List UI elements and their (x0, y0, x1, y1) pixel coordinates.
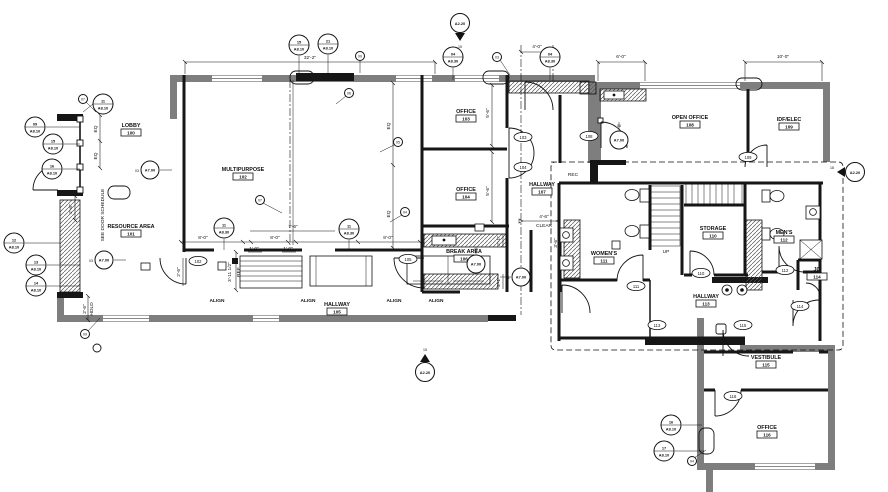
note-text: ALIGN (429, 298, 444, 304)
keynote-number: 06 (347, 92, 351, 96)
room-label-office-104: OFFICE 104 (456, 187, 476, 200)
callout-bubble: 11 A8.10 (93, 94, 113, 114)
callout-bubble: 04 A8.30 (443, 47, 463, 67)
dim-text: EQ (386, 210, 392, 217)
room-label-resource-area: RESOURCE AREA 101 (107, 224, 154, 237)
dim-text: 32'-2" (304, 55, 317, 61)
keynote-number: 04 (690, 460, 694, 464)
keynote-number: 05 (396, 141, 400, 145)
door-tag-number: 108 (586, 134, 594, 139)
dim-text: 2'-6" (176, 267, 182, 277)
keynote: 04 (688, 457, 697, 466)
note-text: CLEAR (536, 223, 553, 229)
room-name: HALLWAY (693, 294, 719, 300)
door-tag-number: 105 (405, 257, 413, 262)
elevation-sheet: A7.00 (614, 138, 624, 143)
callout-sheet: A8.30 (448, 59, 458, 64)
callout-bubble: 11 A8.30 (339, 219, 359, 239)
room-number: 107 (538, 189, 546, 194)
new-wall-infill (57, 73, 768, 345)
callout-sheet: A8.10 (659, 453, 669, 458)
callout-sheet: A8.10 (31, 288, 41, 293)
room-number: 101 (127, 231, 135, 236)
door-tag-number: 112 (782, 268, 789, 273)
room-name: VESTIBULE (751, 355, 782, 361)
note-text: ALIGN (387, 298, 402, 304)
elevation-number: 11 (506, 276, 510, 280)
elevation-marker: A7.00 11 (506, 268, 530, 286)
hallway-casework (141, 224, 620, 288)
room-number: 104 (462, 194, 470, 199)
door-tag-number: 113 (654, 323, 661, 328)
callout-bubble: 11 A8.30 (214, 218, 234, 238)
elevation-sheet: A7.00 (99, 258, 109, 263)
callout-bubble: 15 A8.10 (289, 35, 309, 55)
door-tag-number: 115 (740, 323, 747, 328)
door-tag-number: 111 (633, 284, 640, 289)
callout-sheet: A8.10 (47, 171, 57, 176)
room-name: HALLWAY (529, 182, 555, 188)
dim-text: 2'-1" (496, 236, 502, 246)
floor-plan-canvas: LOBBY 100 RESOURCE AREA 101 MULTIPURPOSE… (0, 0, 888, 492)
room-number: 111 (600, 258, 608, 263)
note-text: HOLD (89, 302, 95, 316)
elevation-sheet: A7.00 (471, 262, 481, 267)
room-label-open-office: OPEN OFFICE 108 (672, 115, 709, 128)
room-name: LOBBY (122, 123, 141, 129)
door-tag-number: 114 (797, 304, 804, 309)
door-tag-number: 110 (698, 271, 705, 276)
room-name: OFFICE (456, 109, 476, 115)
dim-text: EQ (386, 122, 392, 129)
keynote: 09 (81, 330, 90, 339)
elevation-marker: A7.00 03 (135, 161, 159, 179)
note-text: ALIGN (210, 298, 225, 304)
dim-text: 2'-6" (68, 204, 74, 214)
callout-sheet: A8.30 (545, 59, 555, 64)
keynote: 07 (256, 196, 265, 205)
elevation-marker: A7.00 06 (610, 124, 628, 149)
keynote: 06 (345, 89, 354, 98)
door-tag: 115 (734, 320, 752, 329)
room-name: OFFICE (757, 425, 777, 431)
elevation-number: 06 (617, 124, 621, 128)
door-tag: 116 (724, 391, 742, 400)
elevation-markers: A7.00 03 A7.00 03 A7.00 12 A7.00 11 A7.0… (89, 124, 628, 286)
callout-number: 17 (662, 446, 666, 451)
door-tag: 104 (514, 162, 532, 171)
callout-sheet: A8.10 (98, 106, 108, 111)
dim-text: 2'-1" (496, 277, 502, 287)
callout-bubble: 17 A8.10 (654, 441, 674, 461)
door-tag: 113 (648, 320, 666, 329)
room-label-idf-elec: IDF/ELEC 109 (777, 117, 802, 130)
door-tag: 102 (189, 256, 207, 265)
elevation-marker: A7.00 03 (89, 251, 113, 269)
callout-sheet: A8.30 (219, 230, 229, 235)
room-number: 108 (686, 122, 694, 127)
room-number: 100 (127, 130, 135, 135)
door-tag: 112 (776, 265, 794, 274)
room-number: 105 (333, 309, 341, 314)
elevation-sheet: A7.00 (145, 168, 155, 173)
keynote: 09 (356, 52, 365, 61)
keynote-number: 07 (81, 98, 85, 102)
room-number: 109 (785, 124, 793, 129)
room-label-vestibule: VESTIBULE 115 (751, 355, 782, 368)
section-number: 15 (458, 45, 462, 49)
dim-text: 6'-0" (616, 54, 626, 60)
dim-text: 2'-6" (82, 304, 88, 314)
callout-sheet: A8.10 (30, 129, 40, 134)
callout-sheet: A8.10 (294, 47, 304, 52)
callout-sheet: A8.10 (666, 427, 676, 432)
room-name: RESOURCE AREA (107, 224, 154, 230)
room-name: STORAGE (700, 226, 727, 232)
section-number: 18 (830, 166, 834, 170)
dim-text: 8'-0" (383, 235, 393, 241)
room-name: MULTIPURPOSE (222, 167, 265, 173)
door-tag: 109 (739, 152, 757, 161)
door-tag-number: 103 (520, 135, 528, 140)
dim-text: 5'-6" (485, 186, 491, 196)
dim-text: EQ (93, 125, 99, 132)
section-sheet: A2.20 (455, 21, 465, 26)
room-number: 103 (462, 116, 470, 121)
door-tag-number: 116 (730, 394, 737, 399)
room-name: HALLWAY (324, 302, 350, 308)
room-number: 116 (763, 432, 771, 437)
keynote-number: 09 (358, 55, 362, 59)
room-label-hallway-113: HALLWAY 113 (693, 294, 719, 307)
keynote-number: 04 (403, 211, 407, 215)
room-name: WOMEN'S (591, 251, 618, 257)
room-name: OPEN OFFICE (672, 115, 709, 121)
room-number: 115 (762, 362, 770, 367)
note-text: REF (236, 267, 242, 277)
room-name: MEN'S (776, 230, 793, 236)
callout-sheet: A8.10 (48, 146, 58, 151)
callout-bubble: 16 A8.10 (661, 415, 681, 435)
section-sheet: A2.20 (850, 170, 860, 175)
door-tag-number: 102 (195, 259, 203, 264)
door-tag: 103 (514, 132, 532, 141)
elevation-number: 12 (474, 248, 478, 252)
section-sheet: A2.20 (420, 370, 430, 375)
keynote-number: 07 (258, 199, 262, 203)
note-text: REC (568, 172, 579, 178)
dim-text: 4'-6" (539, 214, 549, 220)
elevation-number: 03 (135, 169, 139, 173)
dim-text: 8'-0" (270, 235, 280, 241)
door-tag: 111 (627, 281, 645, 290)
section-marker: A2.20 18 (830, 163, 864, 182)
room-number: 113 (702, 301, 710, 306)
room-label-mens: MEN'S 112 (774, 230, 794, 243)
callout-sheet: A8.10 (9, 245, 19, 250)
room-label-hallway-107: HALLWAY 107 (529, 182, 555, 195)
room-label-storage: STORAGE 110 (700, 226, 727, 239)
section-number: 15 (423, 348, 427, 352)
room-label-jc: JC 114 (807, 267, 827, 280)
dim-text: 10'-0" (777, 54, 790, 60)
keynote-number: 03 (495, 56, 499, 60)
callout-bubble: 21 A8.10 (318, 34, 338, 54)
keynote: 05 (394, 138, 403, 147)
note-text: UP (663, 249, 670, 255)
section-marker: A2.20 15 (451, 14, 470, 50)
dim-text: 5'-6" (485, 108, 491, 118)
door-tag-number: 104 (520, 165, 528, 170)
elevation-number: 03 (89, 259, 93, 263)
room-number: 102 (239, 174, 247, 179)
room-label-office-103: OFFICE 103 (456, 109, 476, 122)
callout-bubble: 09 A8.10 (25, 117, 45, 137)
note-text: ALIGN (301, 298, 316, 304)
floor-plan-sheet: LOBBY 100 RESOURCE AREA 101 MULTIPURPOSE… (0, 0, 888, 492)
callout-sheet: A8.30 (344, 231, 354, 236)
section-marker: A2.20 15 (416, 348, 435, 382)
callout-bubble: 04 A8.30 (540, 47, 560, 67)
dim-text: 8'-0" (198, 235, 208, 241)
keynote: 07 (79, 95, 88, 104)
room-name: JC (814, 267, 821, 273)
dim-text: 3'-6" (553, 238, 559, 248)
room-label-office-116: OFFICE 116 (757, 425, 777, 438)
room-number: 110 (709, 233, 717, 238)
door-tag: 108 (580, 131, 598, 140)
door-tag: 114 (791, 301, 809, 310)
room-number: 114 (813, 274, 821, 279)
elevation-sheet: A7.00 (516, 275, 526, 280)
callout-bubble: 16 A8.10 (42, 159, 62, 179)
callout-bubble: 12 A8.10 (4, 233, 24, 253)
note-text: SEE DOOR SCHEDULE (100, 189, 106, 242)
door-tag: 110 (692, 268, 710, 277)
door-tag: 105 (399, 254, 417, 263)
room-label-multipurpose: MULTIPURPOSE 102 (222, 167, 265, 180)
room-name: IDF/ELEC (777, 117, 802, 123)
callout-bubble: 15 A8.10 (43, 134, 63, 154)
door-tag-number: 109 (745, 155, 753, 160)
dim-text: 7'-6" (288, 224, 298, 230)
dim-text: 1'-0" (249, 246, 259, 252)
dim-text: EQ (93, 152, 99, 159)
keynote-number: 09 (83, 333, 87, 337)
callout-bubble: 13 A8.10 (26, 255, 46, 275)
room-label-womens: WOMEN'S 111 (591, 251, 618, 264)
room-label-lobby: LOBBY 100 (121, 123, 141, 136)
callout-sheet: A8.10 (323, 46, 333, 51)
room-label-hallway-105: HALLWAY 105 (324, 302, 350, 315)
dim-text: 4'-0" (532, 44, 542, 50)
room-number: 112 (780, 237, 788, 242)
callout-bubble: 14 A8.10 (26, 276, 46, 296)
keynote: 04 (401, 208, 410, 217)
room-name: OFFICE (456, 187, 476, 193)
dim-text: 1'-0" (283, 246, 293, 252)
room-number: 106 (460, 256, 468, 261)
dim-text: 3'-11 1/2" (227, 262, 233, 282)
callout-sheet: A8.10 (31, 267, 41, 272)
stair (651, 184, 742, 246)
keynote: 03 (493, 53, 502, 62)
